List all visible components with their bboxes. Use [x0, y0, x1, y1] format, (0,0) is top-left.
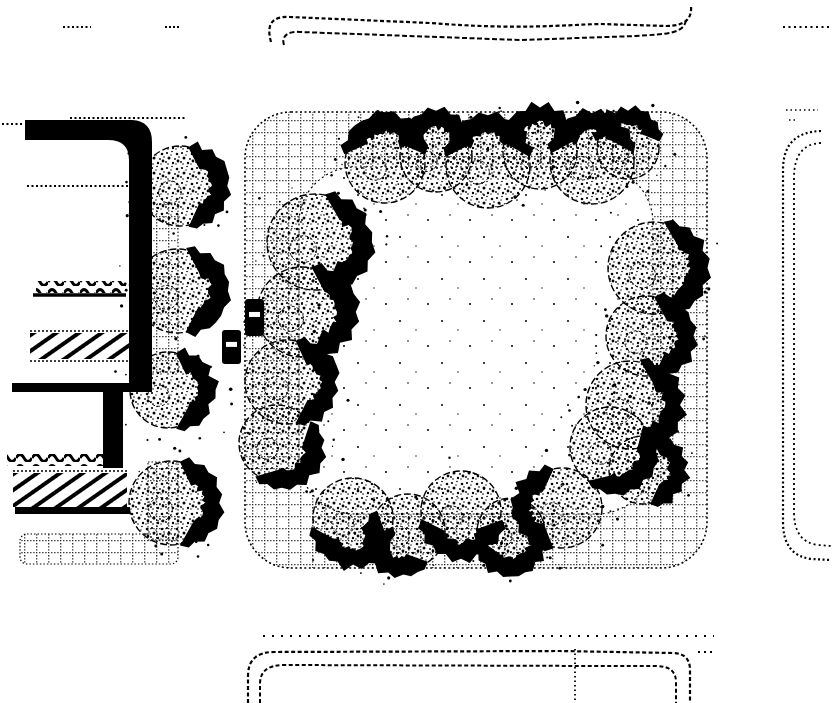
stipple-dot: [632, 181, 635, 184]
stipple-dot: [114, 370, 117, 373]
stipple-dot: [255, 260, 257, 262]
stipple-dot: [558, 567, 561, 570]
stipple-dot: [482, 564, 485, 567]
stipple-dot: [487, 150, 489, 152]
stipple-dot: [397, 183, 399, 185]
stipple-dot: [386, 235, 388, 237]
stipple-dot: [129, 283, 132, 286]
stipple-dot: [704, 335, 706, 337]
stipple-dot: [600, 245, 602, 247]
stipple-dot: [302, 399, 304, 401]
stipple-dot: [341, 458, 344, 461]
stipple-dot: [125, 181, 128, 184]
stipple-dot: [546, 556, 548, 558]
stipple-dot: [673, 153, 676, 156]
stipple-dot: [132, 333, 136, 337]
stipple-dot: [256, 482, 257, 483]
ramp-band: [36, 281, 126, 293]
stipple-dot: [184, 136, 187, 139]
stipple-dot: [703, 290, 706, 293]
stipple-dot: [448, 456, 450, 458]
stipple-dot: [311, 248, 313, 250]
stipple-dot: [439, 153, 442, 156]
stipple-dot: [561, 483, 564, 486]
bollard: [222, 330, 241, 364]
stipple-dot: [676, 430, 679, 433]
stipple-dot: [379, 210, 382, 213]
stipple-dot: [360, 572, 362, 574]
stipple-dot: [373, 499, 376, 502]
stipple-dot: [119, 265, 121, 267]
site-plan-canvas: [0, 0, 832, 703]
stipple-dot: [291, 187, 292, 188]
stipple-dot: [588, 175, 591, 178]
stipple-dot: [312, 559, 314, 561]
stipple-dot: [128, 200, 131, 203]
stipple-dot: [463, 514, 465, 516]
stipple-dot: [601, 544, 604, 547]
stipple-dot: [125, 374, 127, 376]
stipple-dot: [338, 138, 340, 140]
stipple-dot: [394, 147, 396, 149]
stipple-dot: [273, 255, 275, 257]
bollard-body: [222, 330, 241, 364]
stipple-dot: [243, 344, 245, 346]
stipple-dot: [602, 115, 604, 117]
bollard: [245, 299, 264, 336]
stipple-dot: [625, 185, 628, 188]
stipple-dot: [402, 192, 404, 194]
stipple-dot: [643, 352, 645, 354]
stipple-dot: [443, 186, 446, 189]
stipple-dot: [207, 544, 209, 546]
stipple-dot: [656, 175, 658, 177]
stipple-dot: [129, 212, 132, 215]
stipple-dot: [702, 338, 705, 341]
stipple-dot: [616, 518, 619, 521]
stipple-dot: [691, 452, 693, 454]
stipple-dot: [571, 425, 573, 427]
stipple-dot: [498, 163, 499, 164]
stipple-dot: [279, 201, 281, 203]
stipple-dot: [563, 567, 564, 568]
stipple-dot: [332, 438, 334, 440]
stipple-dot: [396, 130, 398, 132]
stipple-dot: [508, 531, 510, 533]
tree-canopy: [597, 117, 659, 179]
stipple-dot: [145, 349, 147, 351]
stipple-dot: [544, 189, 546, 191]
stipple-dot: [160, 552, 163, 555]
wall-bar: [103, 392, 123, 468]
stipple-dot: [203, 224, 205, 226]
stipple-dot: [138, 471, 140, 473]
stipple-dot: [313, 330, 317, 334]
stipple-dot: [613, 391, 616, 394]
stipple-dot: [612, 110, 614, 112]
crosswalk: [13, 473, 127, 507]
stipple-dot: [311, 489, 314, 492]
crosswalk: [30, 333, 148, 359]
stipple-dot: [576, 101, 580, 105]
curb-line: [283, 20, 686, 45]
stipple-dot: [197, 555, 200, 558]
stipple-dot: [353, 531, 356, 534]
top-block-curbs: [63, 6, 830, 45]
stipple-dot: [605, 314, 608, 317]
stipple-dot: [687, 494, 690, 497]
stipple-dot: [500, 110, 502, 112]
stipple-dot: [305, 490, 308, 493]
stipple-dot: [669, 346, 672, 349]
stipple-dot: [125, 289, 128, 292]
stipple-dot: [499, 134, 501, 136]
stipple-dot: [173, 447, 176, 450]
stipple-dot: [647, 401, 650, 404]
stipple-dot: [541, 152, 543, 154]
stipple-dot: [646, 190, 649, 193]
stipple-dot: [545, 449, 548, 452]
tree-canopy: [609, 436, 677, 504]
stipple-dot: [594, 365, 595, 366]
stipple-dot: [522, 204, 525, 207]
stipple-dot: [513, 195, 517, 199]
ramp-band: [7, 454, 107, 466]
stipple-dot: [120, 304, 123, 307]
stipple-dot: [469, 116, 472, 119]
stipple-dot: [316, 256, 319, 259]
curb-line: [783, 131, 831, 560]
bollard-notch: [226, 342, 237, 347]
stipple-dot: [258, 197, 261, 200]
stipple-dot: [509, 580, 512, 583]
stipple-dot: [610, 212, 612, 214]
stipple-dot: [421, 171, 424, 174]
stipple-dot: [534, 132, 536, 134]
bollard-body: [245, 299, 264, 336]
stipple-dot: [386, 497, 388, 499]
stipple-dot: [271, 327, 273, 329]
stipple-dot: [560, 416, 562, 418]
stipple-dot: [707, 287, 710, 290]
stipple-dot: [341, 164, 343, 166]
stipple-dot: [672, 280, 674, 282]
stipple-dot: [262, 255, 264, 257]
wall-bar: [12, 383, 130, 392]
stipple-dot: [467, 549, 470, 552]
stipple-dot: [125, 424, 127, 426]
stipple-dot: [395, 166, 397, 168]
stipple-dot: [226, 211, 229, 214]
stipple-dot: [405, 119, 407, 121]
stipple-dot: [126, 214, 129, 217]
stipple-dot: [516, 199, 518, 201]
stipple-dot: [595, 334, 597, 336]
stipple-dot: [346, 399, 349, 402]
stipple-dot: [178, 450, 181, 453]
site-plan: [0, 0, 832, 703]
stipple-dot: [596, 361, 599, 364]
stipple-dot: [124, 282, 127, 285]
stipple-dot: [364, 208, 367, 211]
stipple-dot: [358, 116, 360, 118]
wall-bar: [15, 507, 130, 514]
stipple-dot: [472, 560, 474, 562]
stipple-dot: [597, 392, 599, 394]
stipple-dot: [601, 505, 605, 509]
stipple-dot: [198, 437, 201, 440]
stipple-dot: [330, 174, 332, 176]
stipple-dot: [537, 125, 540, 128]
stipple-dot: [568, 409, 571, 412]
stipple-dot: [158, 438, 161, 441]
stipple-dot: [217, 224, 220, 227]
stipple-dot: [327, 420, 329, 422]
stipple-dot: [128, 152, 131, 155]
stipple-dot: [385, 243, 387, 245]
stipple-dot: [716, 243, 718, 245]
stipple-dot: [334, 158, 337, 161]
stipple-dot: [230, 402, 233, 405]
stipple-dot: [387, 576, 390, 579]
stipple-dot: [174, 337, 177, 340]
stipple-dot: [229, 387, 233, 391]
curb-line: [248, 651, 690, 703]
stipple-dot: [577, 396, 580, 399]
stipple-dot: [146, 439, 148, 441]
stipple-dot: [583, 388, 586, 391]
tree-canopy: [140, 146, 220, 226]
right-block-curbs: [783, 110, 831, 560]
stipple-dot: [596, 352, 598, 354]
stipple-dot: [414, 495, 417, 498]
bollard-notch: [249, 312, 260, 317]
stipple-dot: [172, 232, 175, 235]
stipple-dot: [498, 107, 501, 110]
stipple-dot: [645, 344, 647, 346]
bottom-block-curbs: [248, 636, 714, 703]
stipple-dot: [664, 165, 666, 167]
stipple-dot: [561, 486, 563, 488]
stipple-dot: [609, 510, 611, 512]
stipple-dot: [383, 583, 385, 585]
curb-line: [794, 143, 831, 546]
stipple-dot: [549, 556, 552, 559]
stipple-dot: [223, 431, 225, 433]
stipple-dot: [332, 445, 333, 446]
stipple-dot: [328, 247, 330, 249]
stipple-dot: [154, 545, 157, 548]
stipple-dot: [117, 463, 120, 466]
curb-line: [260, 665, 676, 703]
stipple-dot: [604, 308, 607, 311]
stipple-dot: [139, 215, 142, 218]
stipple-dot: [433, 564, 435, 566]
stipple-dot: [651, 104, 654, 107]
